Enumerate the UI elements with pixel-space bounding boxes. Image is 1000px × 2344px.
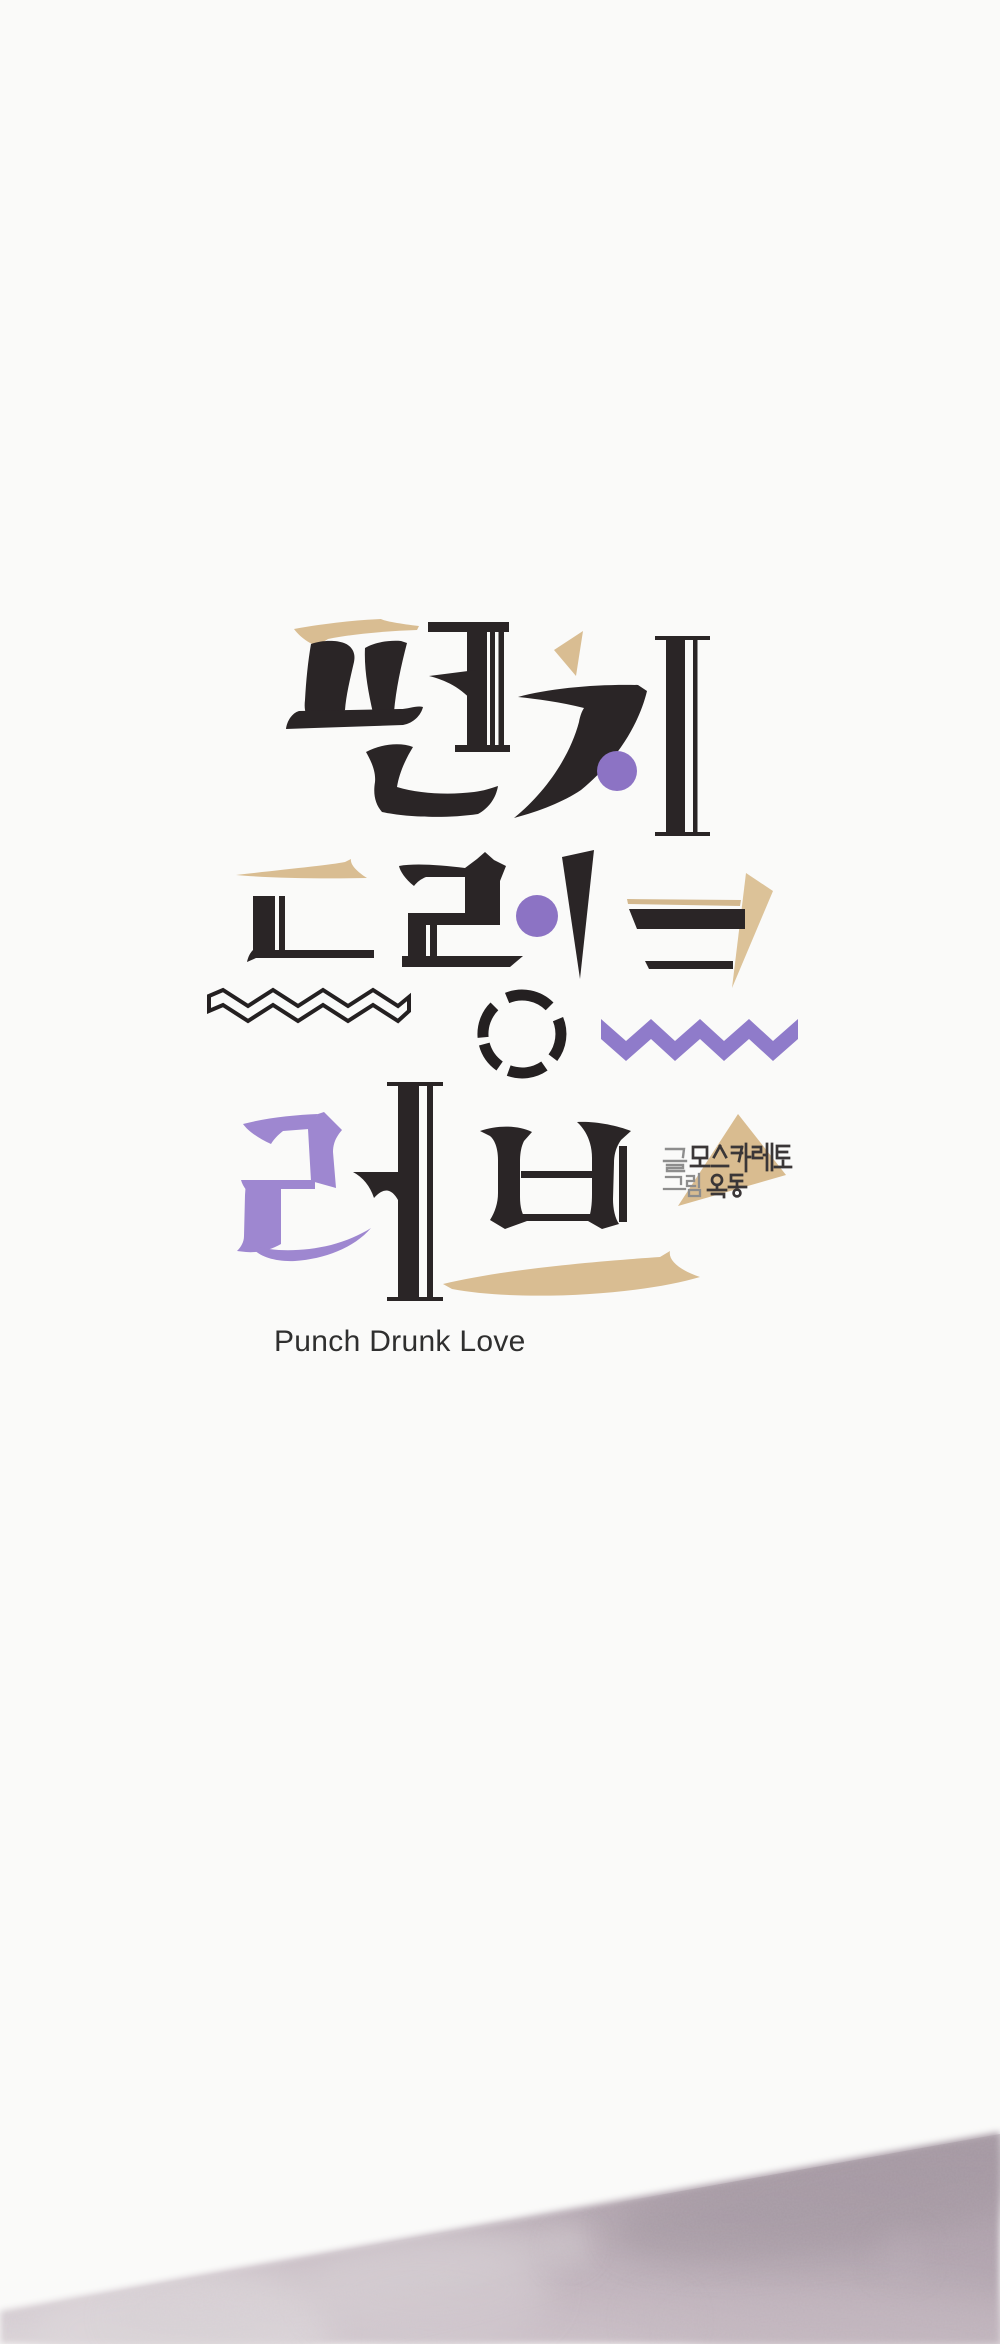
svg-text:Punch Drunk Love: Punch Drunk Love bbox=[274, 1325, 526, 1358]
